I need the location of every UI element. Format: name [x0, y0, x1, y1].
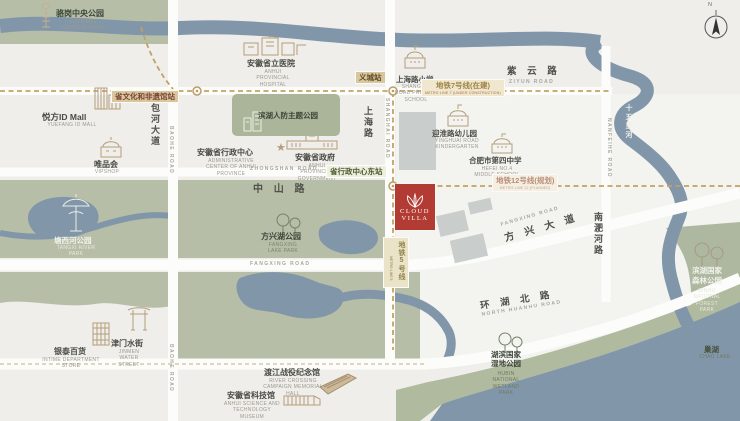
poi-chaohu-sublabel: CHAO LAKE — [698, 354, 732, 360]
station-xingzheng-east-badge: 省行政中心东站 — [326, 165, 387, 178]
poi-forest-sublabel: BINHU NATIONAL FOREST PARK — [688, 288, 726, 313]
poi-gov-label: 安徽省政府 — [295, 152, 335, 163]
poi-tech-museum-sublabel: ANHUI SCIENCE AND TECHNOLOGY MUSEUM — [222, 401, 282, 420]
metro-line5-badge: METRO LINE 5地铁5号线 — [383, 237, 409, 288]
road-shanghai-label: 上海路 — [362, 106, 375, 139]
poi-fangxinghu-sublabel: FANGXING LAKE PARK — [262, 242, 304, 255]
road-zhongshan-label: 中 山 路 — [253, 180, 309, 195]
poi-jinmen-sublabel: JINMEN WATER STREET — [111, 349, 147, 368]
road-ziyun-sublabel: ZIYUN ROAD — [509, 79, 554, 85]
map-canvas[interactable]: 滨湖人防主题公园 ★ 骆岗中央公园 LUOGANG CENTRAL PA — [0, 0, 740, 421]
jinmen-gate-icon — [126, 304, 152, 337]
poi-no4-school-label: 合肥市第四中学 — [469, 155, 522, 166]
luogang-tower-icon — [36, 2, 56, 33]
renfang-park-block: 滨湖人防主题公园 — [232, 94, 340, 136]
poi-hospital-label: 安徽省立医院 — [247, 58, 295, 69]
road-baohe-label: 包河大道 — [149, 103, 162, 147]
cloud-villa-name-line1: CLOUD — [400, 208, 430, 215]
poi-intime-sublabel: INTIME DEPARTMENT STORE — [42, 357, 100, 370]
poi-jinmen-label: 津门水街 — [111, 338, 143, 349]
primary-school-icon — [402, 44, 428, 75]
road-zhongshan-sublabel: ZHONGSHAN ROAD — [250, 166, 318, 172]
poi-hospital-sublabel: ANHUI PROVINCIAL HOSPITAL — [247, 69, 299, 88]
road-ziyun-label: 紫 云 路 — [507, 63, 561, 77]
poi-wetland-sublabel: HUBIN NATIONAL WETLAND PARK — [486, 371, 526, 396]
building-block — [399, 112, 436, 170]
road-nanfeihe-label: 南淝河路 — [592, 212, 605, 256]
station-yicheng-badge: 义城站 — [355, 71, 386, 84]
road-shanghai-sublabel: SHANGHAI ROAD — [384, 98, 390, 159]
road-fangxing-west-sublabel: FANGXING ROAD — [250, 261, 310, 267]
poi-forest-label: 滨湖国家森林公园 — [690, 266, 724, 286]
poi-renfang-label: 滨湖人防主题公园 — [258, 110, 318, 121]
poi-intime-label: 银泰百货 — [54, 346, 86, 357]
road-baohe-sublabel: BAOHE ROAD — [168, 126, 174, 174]
cloud-villa-name-line2: VILLA — [402, 215, 429, 222]
station-wenhua-badge: 省文化和非遗馆站 — [111, 90, 179, 103]
poi-fangxinghu-label: 方兴湖公园 — [261, 231, 301, 242]
road-baohe-sublabel-2: BAOHE ROAD — [168, 344, 174, 392]
admin-center-star-icon: ★ — [276, 143, 286, 154]
metro-line5-badge-label: 地铁5号线 — [396, 241, 407, 281]
poi-vipshop-sublabel: VIPSHOP — [94, 169, 120, 175]
metro-line12-badge-sublabel: METRO LINE 12 (PLANNED) — [496, 186, 554, 191]
poi-kindergarten-sublabel: YINGHUAI ROAD KINDERGARTEN — [434, 138, 480, 151]
tangxi-pavilion-icon — [60, 193, 92, 240]
metro-line7-badge-sublabel: METRO LINE 7 (UNDER CONSTRUCTION) — [425, 91, 501, 96]
poi-luogang-sublabel: LUOGANG CENTRAL PARK — [56, 19, 110, 32]
poi-admin-center-label: 安徽省行政中心 — [197, 147, 253, 158]
poi-yuefang-sublabel: YUEFANG ID MALL — [42, 122, 102, 128]
metro-line5-badge-sublabel: METRO LINE 5 — [385, 256, 396, 281]
metro-line7-badge: 地铁7号线(在建) METRO LINE 7 (UNDER CONSTRUCTI… — [421, 79, 505, 97]
poi-dujiang-label: 渡江战役纪念馆 — [264, 367, 320, 378]
cloud-villa-logo-icon — [404, 193, 426, 208]
metro-line12-badge: 地铁12号线(规划) METRO LINE 12 (PLANNED) — [492, 174, 558, 192]
poi-tangxi-sublabel: TANGXI RIVER PARK — [54, 245, 98, 258]
poi-luogang-label: 骆岗中央公园 — [56, 8, 104, 19]
memorial-slab-icon — [318, 368, 358, 401]
poi-tech-museum-label: 安徽省科技馆 — [227, 390, 275, 401]
compass-icon — [702, 9, 730, 46]
compass-label: N — [708, 2, 712, 8]
cloud-villa-marker[interactable]: CLOUD VILLA — [395, 184, 435, 230]
poi-wetland-label: 湖滨国家湿地公园 — [490, 350, 522, 368]
road-nanfeihe-sublabel: NANFEIHE ROAD — [606, 118, 612, 178]
river-shiwulihe-label: 十五里河 — [623, 104, 633, 140]
metro-line7-badge-label: 地铁7号线(在建) — [436, 81, 490, 90]
metro-line12-badge-label: 地铁12号线(规划) — [496, 176, 554, 185]
